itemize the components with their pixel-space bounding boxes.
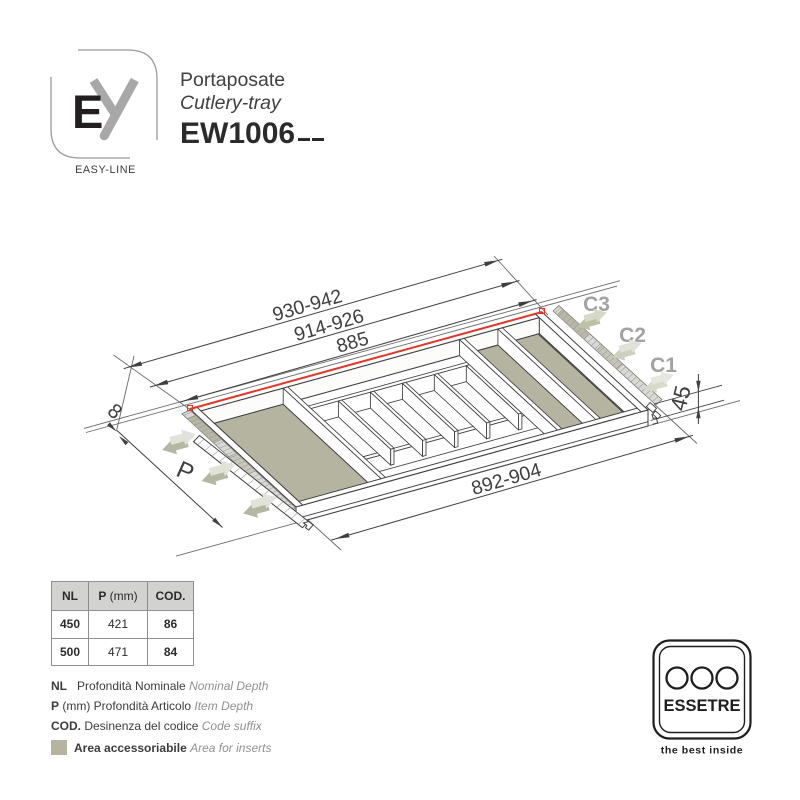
svg-text:P: P [172, 456, 198, 487]
svg-text:8: 8 [103, 399, 127, 424]
svg-text:the best inside: the best inside [661, 745, 744, 757]
svg-text:EASY-LINE: EASY-LINE [75, 164, 136, 176]
svg-text:ESSETRE: ESSETRE [663, 697, 740, 715]
svg-text:E: E [72, 85, 103, 138]
